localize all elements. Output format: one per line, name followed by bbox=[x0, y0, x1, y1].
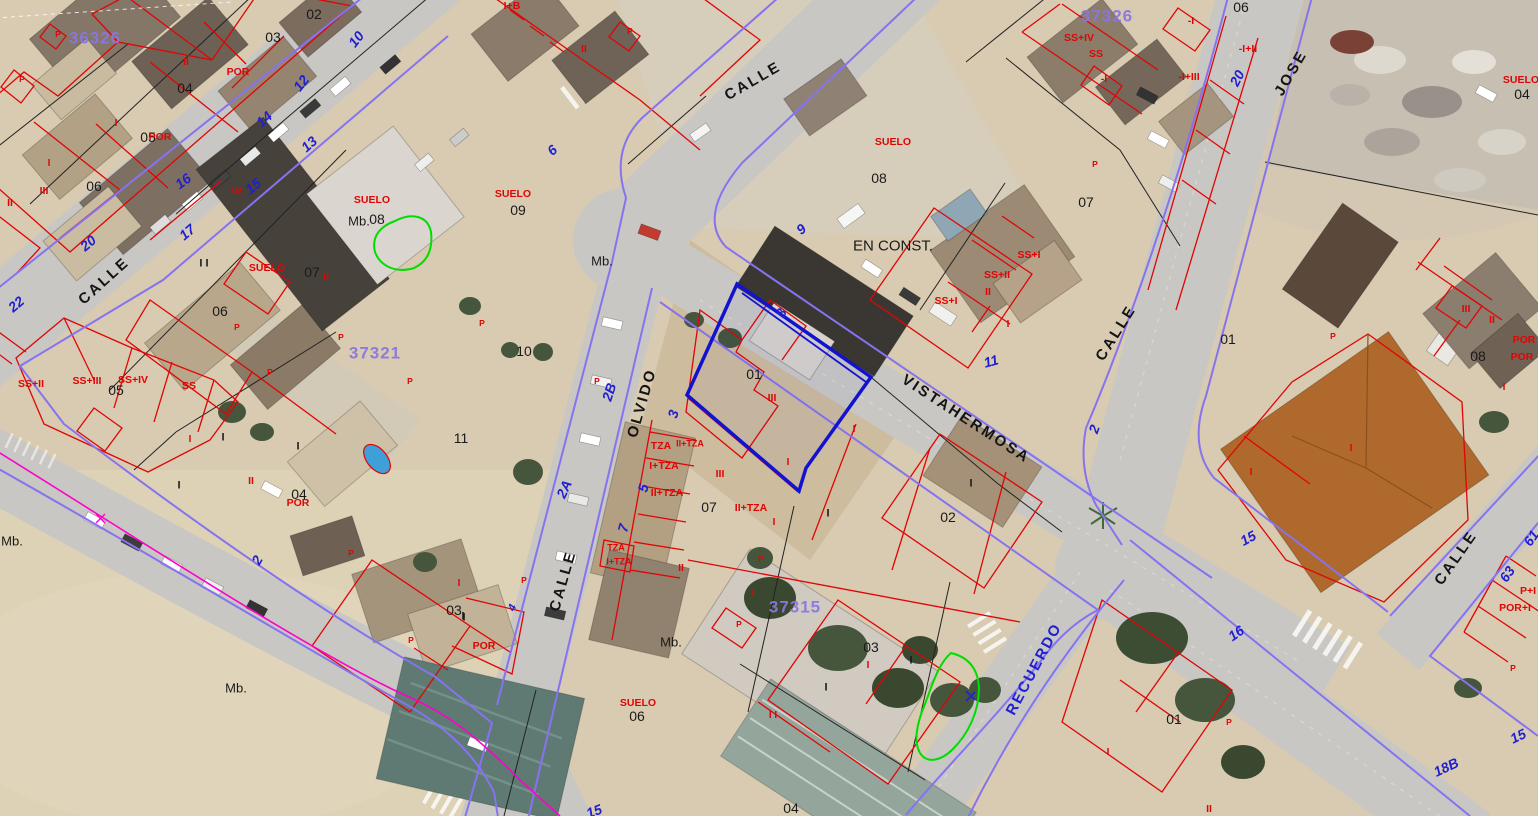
aerial-basemap bbox=[0, 0, 1538, 816]
map-canvas[interactable]: 36326373263732137315CALLECALLEOLVIDOCALL… bbox=[0, 0, 1538, 816]
